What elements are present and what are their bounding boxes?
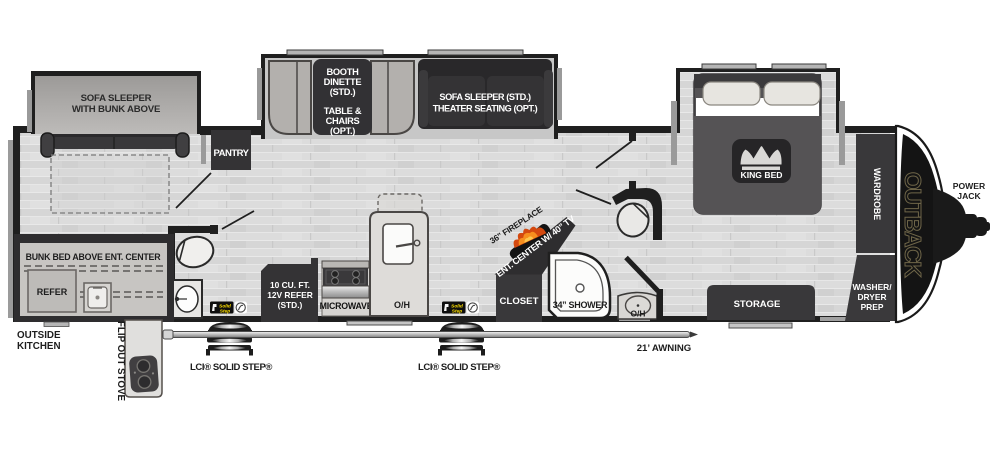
svg-text:10 CU. FT.: 10 CU. FT. (270, 280, 310, 290)
svg-text:THEATER SEATING (OPT.): THEATER SEATING (OPT.) (433, 104, 538, 114)
svg-text:FLIP OUT STOVE: FLIP OUT STOVE (115, 321, 126, 402)
svg-text:LCI® SOLID STEP®: LCI® SOLID STEP® (418, 362, 500, 373)
svg-text:MICROWAVE: MICROWAVE (320, 301, 373, 311)
svg-text:CHAIRS: CHAIRS (326, 116, 360, 126)
svg-text:SOFA SLEEPER (STD.): SOFA SLEEPER (STD.) (439, 92, 531, 102)
svg-text:12V REFER: 12V REFER (267, 290, 313, 300)
svg-text:KING BED: KING BED (740, 170, 782, 180)
svg-text:BUNK BED ABOVE ENT. CENTER: BUNK BED ABOVE ENT. CENTER (26, 252, 162, 262)
svg-text:21’ AWNING: 21’ AWNING (637, 343, 692, 354)
svg-text:REFER: REFER (37, 287, 68, 297)
svg-text:POWER: POWER (953, 181, 986, 191)
svg-text:BOOTH: BOOTH (326, 67, 359, 77)
svg-text:DRYER: DRYER (857, 292, 886, 302)
svg-text:CLOSET: CLOSET (500, 296, 539, 307)
svg-text:O/H: O/H (631, 309, 646, 319)
svg-text:PANTRY: PANTRY (214, 148, 250, 159)
svg-text:WITH BUNK ABOVE: WITH BUNK ABOVE (72, 104, 161, 115)
svg-text:OUTSIDE: OUTSIDE (17, 330, 61, 341)
svg-text:O/H: O/H (394, 300, 410, 310)
svg-text:KITCHEN: KITCHEN (17, 341, 61, 352)
svg-text:TABLE &: TABLE & (324, 106, 362, 116)
svg-text:(STD.): (STD.) (278, 300, 303, 310)
svg-text:OUTBACK: OUTBACK (900, 172, 926, 278)
svg-text:WASHER/: WASHER/ (852, 282, 892, 292)
svg-text:(OPT.): (OPT.) (330, 126, 355, 136)
svg-text:SOFA SLEEPER: SOFA SLEEPER (81, 93, 152, 104)
svg-text:DINETTE: DINETTE (324, 77, 362, 87)
svg-text:WARDROBE: WARDROBE (872, 168, 882, 220)
svg-text:PREP: PREP (861, 302, 884, 312)
svg-text:34” SHOWER: 34” SHOWER (553, 300, 608, 310)
svg-text:Step: Step (220, 308, 230, 314)
svg-text:(STD.): (STD.) (330, 87, 356, 97)
svg-text:STORAGE: STORAGE (734, 299, 781, 310)
svg-text:Step: Step (452, 308, 462, 314)
svg-text:JACK: JACK (957, 191, 981, 201)
svg-text:LCI® SOLID STEP®: LCI® SOLID STEP® (190, 362, 272, 373)
